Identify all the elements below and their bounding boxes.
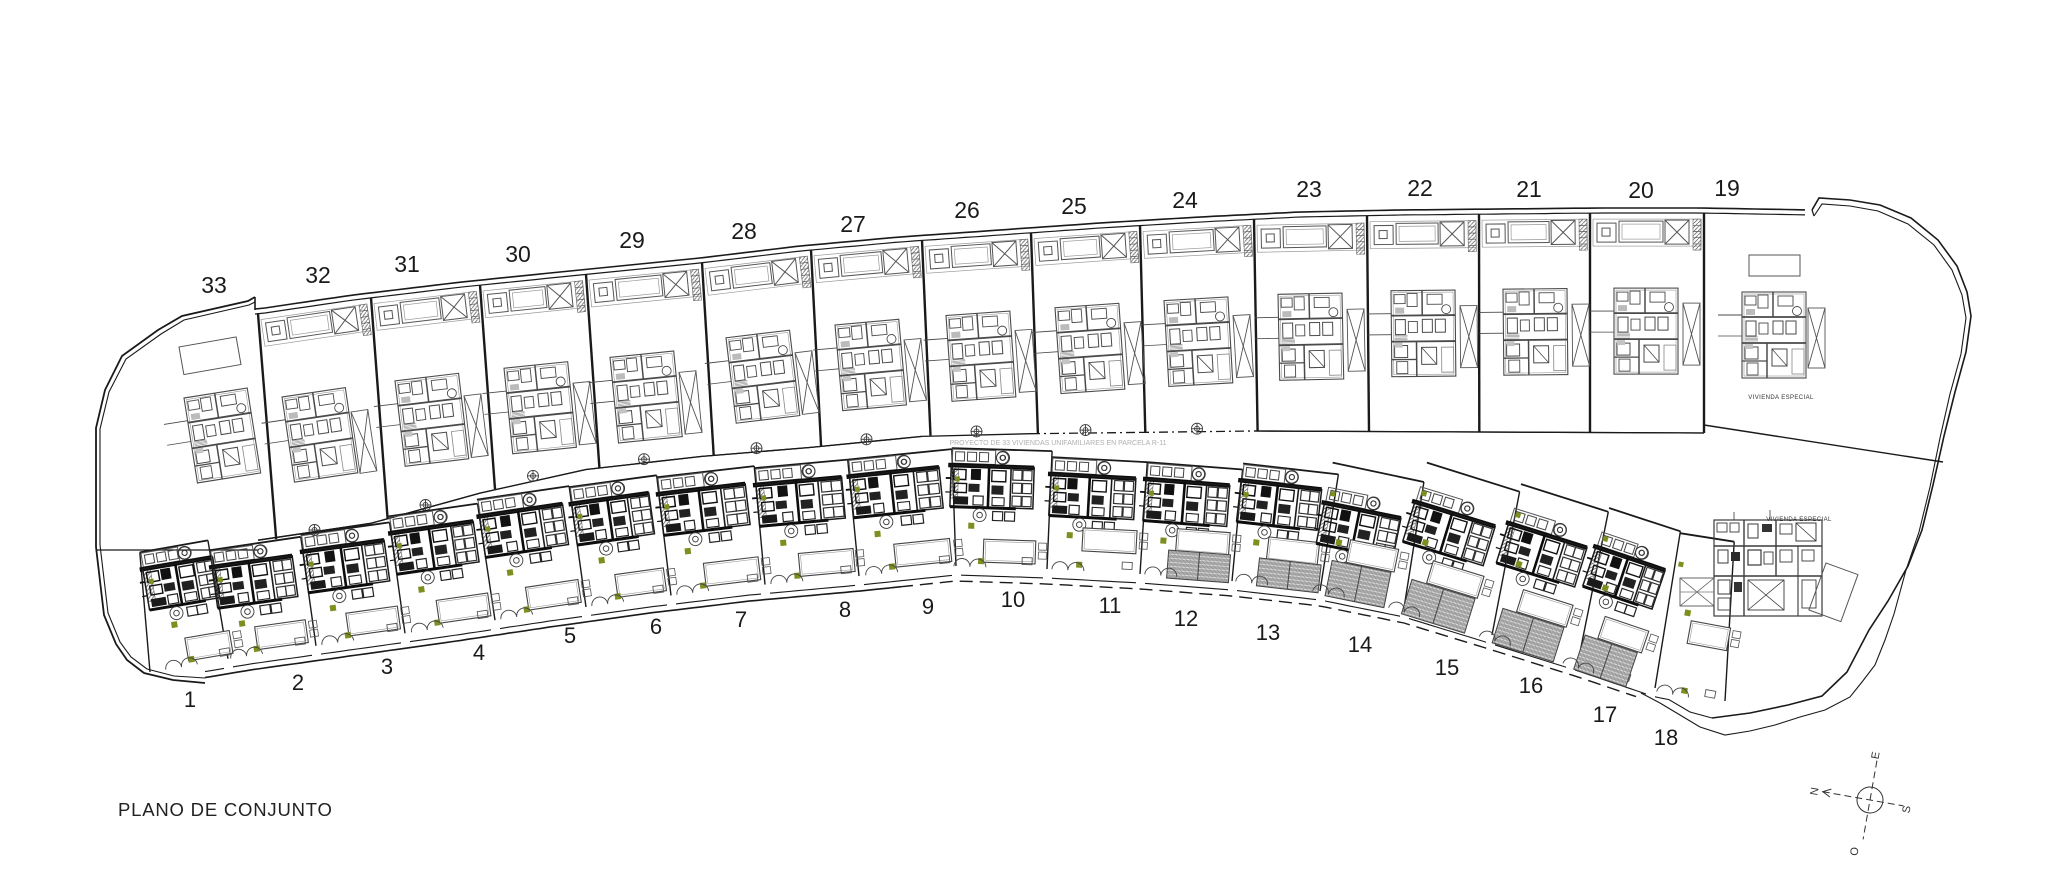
svg-text:PROYECTO DE 33 VIVIENDAS UNIFA: PROYECTO DE 33 VIVIENDAS UNIFAMILIARES E… <box>949 440 1166 447</box>
svg-text:12: 12 <box>1174 606 1198 631</box>
svg-text:26: 26 <box>954 197 980 223</box>
svg-text:1: 1 <box>184 687 196 712</box>
svg-text:2: 2 <box>292 670 304 695</box>
svg-text:VIVIENDA ESPECIAL: VIVIENDA ESPECIAL <box>1748 395 1814 401</box>
svg-text:13: 13 <box>1256 620 1280 645</box>
svg-text:25: 25 <box>1061 193 1087 219</box>
svg-text:27: 27 <box>840 211 866 237</box>
svg-text:20: 20 <box>1628 177 1654 203</box>
svg-text:30: 30 <box>505 241 531 267</box>
svg-text:5: 5 <box>564 623 576 648</box>
svg-text:23: 23 <box>1296 176 1322 202</box>
svg-text:19: 19 <box>1714 175 1740 201</box>
svg-text:3: 3 <box>381 654 393 679</box>
svg-text:31: 31 <box>394 251 420 277</box>
svg-text:9: 9 <box>922 594 934 619</box>
svg-text:11: 11 <box>1099 593 1122 618</box>
svg-text:16: 16 <box>1519 673 1543 698</box>
svg-text:32: 32 <box>305 262 331 288</box>
svg-text:4: 4 <box>473 640 485 665</box>
svg-text:29: 29 <box>619 227 645 253</box>
svg-text:6: 6 <box>650 614 662 639</box>
svg-text:7: 7 <box>735 607 747 632</box>
svg-text:24: 24 <box>1172 187 1198 213</box>
svg-text:22: 22 <box>1407 175 1433 201</box>
svg-text:17: 17 <box>1593 702 1617 727</box>
svg-text:14: 14 <box>1348 632 1372 657</box>
svg-text:33: 33 <box>201 272 227 298</box>
svg-text:15: 15 <box>1435 655 1459 680</box>
svg-text:PLANO DE CONJUNTO: PLANO DE CONJUNTO <box>118 799 333 820</box>
svg-text:18: 18 <box>1654 725 1678 750</box>
svg-text:21: 21 <box>1516 176 1542 202</box>
svg-text:10: 10 <box>1001 587 1025 612</box>
svg-text:28: 28 <box>731 218 757 244</box>
svg-text:8: 8 <box>839 597 851 622</box>
